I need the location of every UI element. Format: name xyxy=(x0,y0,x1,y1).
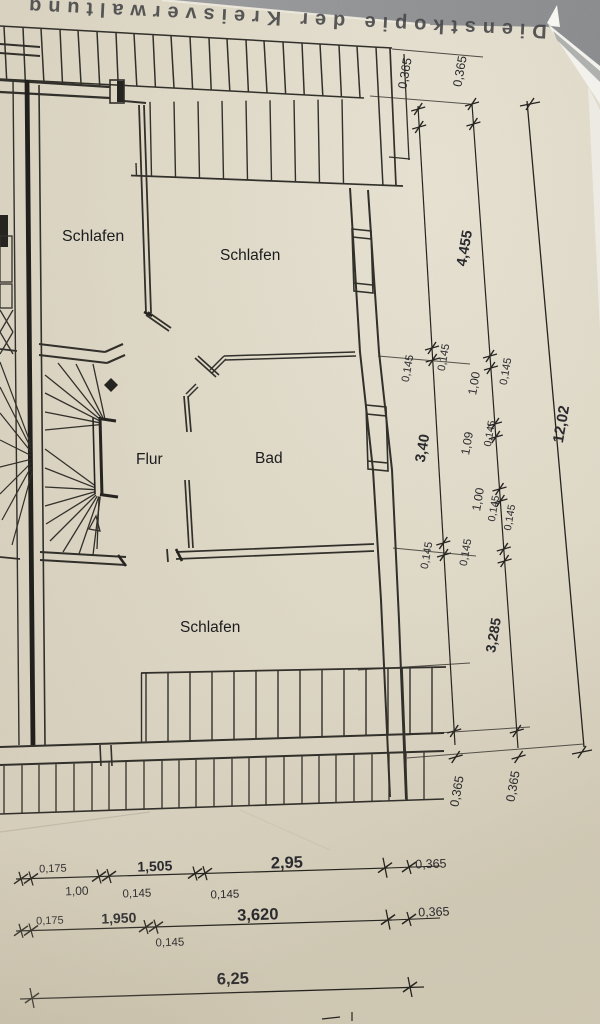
svg-text:Schlafen: Schlafen xyxy=(180,619,240,636)
svg-text:0,145: 0,145 xyxy=(210,889,239,902)
svg-text:Bad: Bad xyxy=(255,450,283,467)
svg-text:3,620: 3,620 xyxy=(237,905,279,924)
svg-text:0,365: 0,365 xyxy=(418,904,450,919)
svg-text:Schlafen: Schlafen xyxy=(220,247,280,264)
svg-text:2,95: 2,95 xyxy=(270,853,303,872)
svg-text:Schlafen: Schlafen xyxy=(62,228,124,245)
svg-text:0,365: 0,365 xyxy=(415,856,447,871)
svg-text:Flur: Flur xyxy=(136,451,163,468)
